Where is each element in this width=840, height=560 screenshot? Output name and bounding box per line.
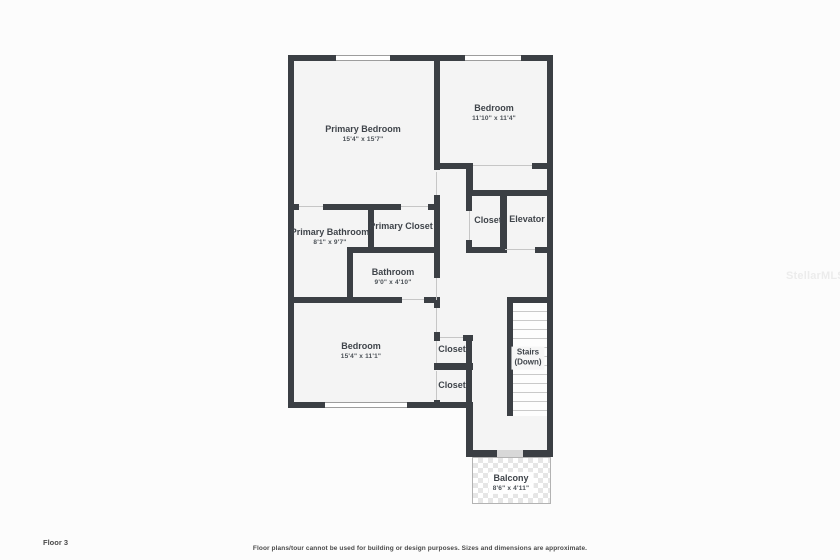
room-label-primary-bedroom: Primary Bedroom 15'4" x 15'7" xyxy=(325,124,401,144)
wall xyxy=(507,297,553,303)
room-label-closet-lower: Closet xyxy=(438,380,466,392)
wall xyxy=(407,402,473,408)
room-dims: 8'1" x 9'7" xyxy=(291,239,370,247)
door-opening xyxy=(473,165,532,166)
wall xyxy=(547,61,553,457)
room-label-elevator: Elevator xyxy=(509,214,545,226)
room-label-balcony: Balcony 8'6" x 4'11" xyxy=(489,472,534,494)
wall xyxy=(434,335,440,341)
wall xyxy=(428,204,440,210)
room-name: Primary Closet xyxy=(369,221,433,233)
wall xyxy=(466,247,505,253)
door-opening xyxy=(436,341,437,363)
door-opening xyxy=(436,371,437,400)
door-opening xyxy=(402,299,424,300)
wall xyxy=(288,297,402,303)
wall xyxy=(466,335,472,408)
room-label-bathroom: Bathroom 9'0" x 4'10" xyxy=(372,267,415,287)
room-name: Primary Bathroom xyxy=(291,227,370,239)
wall xyxy=(390,55,465,61)
room-name: Closet xyxy=(438,344,466,356)
room-label-primary-bathroom: Primary Bathroom 8'1" x 9'7" xyxy=(291,227,370,247)
wall xyxy=(288,55,336,61)
room-label-closet-mid: Closet xyxy=(474,215,502,227)
door-opening xyxy=(505,249,535,250)
room-label-stairs: Stairs (Down) xyxy=(511,347,544,370)
wall xyxy=(347,247,440,253)
room-dims: 15'4" x 11'1" xyxy=(341,353,381,361)
wall xyxy=(434,61,440,170)
floor-plan-page: Primary Bedroom 15'4" x 15'7" Bedroom 11… xyxy=(0,0,840,560)
door-opening xyxy=(299,206,323,207)
room-dims: 15'4" x 15'7" xyxy=(325,136,401,144)
wall xyxy=(466,450,497,457)
wall xyxy=(288,402,325,408)
room-label-bedroom-top: Bedroom 11'10" x 11'4" xyxy=(472,103,516,123)
stellar-mls-watermark: StellarMLS xyxy=(786,270,840,282)
room-dims: 11'10" x 11'4" xyxy=(472,115,516,123)
room-label-primary-closet: Primary Closet xyxy=(369,221,433,233)
floor-plan: Primary Bedroom 15'4" x 15'7" Bedroom 11… xyxy=(0,0,840,560)
wall xyxy=(466,196,472,211)
room-name: Closet xyxy=(474,215,502,227)
door-opening xyxy=(440,337,463,338)
room-label-bedroom-bottom: Bedroom 15'4" x 11'1" xyxy=(341,341,381,361)
balcony-door-threshold xyxy=(497,450,523,457)
room-name: Stairs xyxy=(514,348,541,358)
room-name: Elevator xyxy=(509,214,545,226)
wall xyxy=(347,253,353,297)
window xyxy=(336,55,390,61)
room-name: Primary Bedroom xyxy=(325,124,401,136)
room-dims: 8'6" x 4'11" xyxy=(493,485,530,493)
room-name: Closet xyxy=(438,380,466,392)
room-name: Bathroom xyxy=(372,267,415,279)
room-dims: (Down) xyxy=(514,358,541,368)
wall xyxy=(466,190,553,196)
door-opening xyxy=(436,172,437,195)
disclaimer-text: Floor plans/tour cannot be used for buil… xyxy=(0,545,840,552)
wall xyxy=(535,247,553,253)
room-label-closet-upper: Closet xyxy=(438,344,466,356)
room-name: Balcony xyxy=(493,473,530,485)
door-opening xyxy=(469,211,470,240)
wall xyxy=(532,163,553,169)
room-name: Bedroom xyxy=(341,341,381,353)
door-opening xyxy=(401,206,428,207)
window xyxy=(465,55,521,61)
wall xyxy=(523,450,553,457)
room-name: Bedroom xyxy=(472,103,516,115)
wall xyxy=(424,297,440,303)
window xyxy=(325,402,407,408)
wall xyxy=(288,204,299,210)
wall xyxy=(466,402,473,457)
wall xyxy=(323,204,401,210)
room-dims: 9'0" x 4'10" xyxy=(372,279,415,287)
wall xyxy=(434,163,466,169)
door-opening xyxy=(436,278,437,300)
door-opening xyxy=(436,308,437,332)
